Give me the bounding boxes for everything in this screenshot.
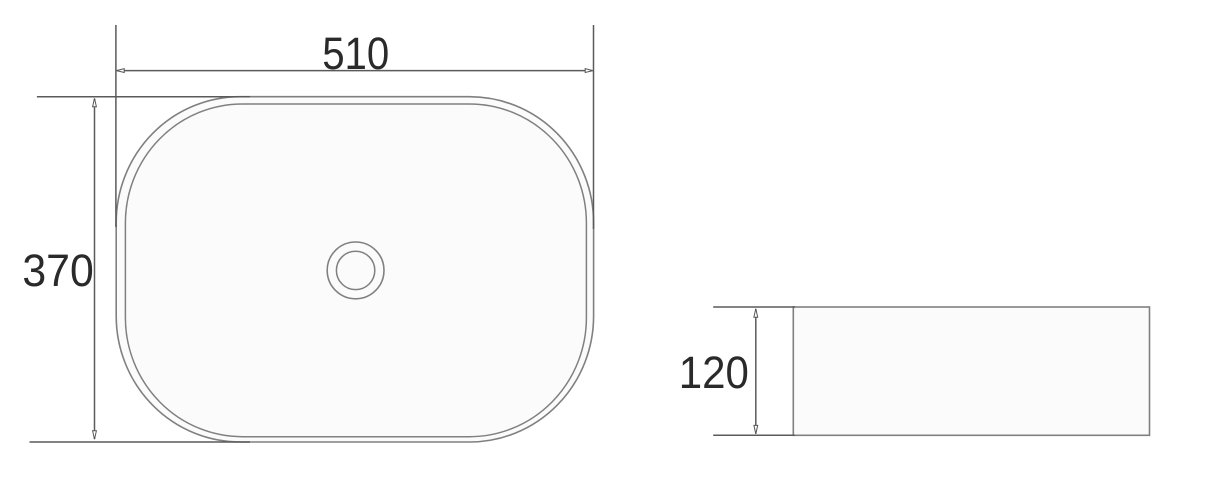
svg-text:510: 510	[322, 28, 389, 79]
svg-text:120: 120	[679, 347, 749, 398]
svg-text:370: 370	[22, 245, 93, 296]
